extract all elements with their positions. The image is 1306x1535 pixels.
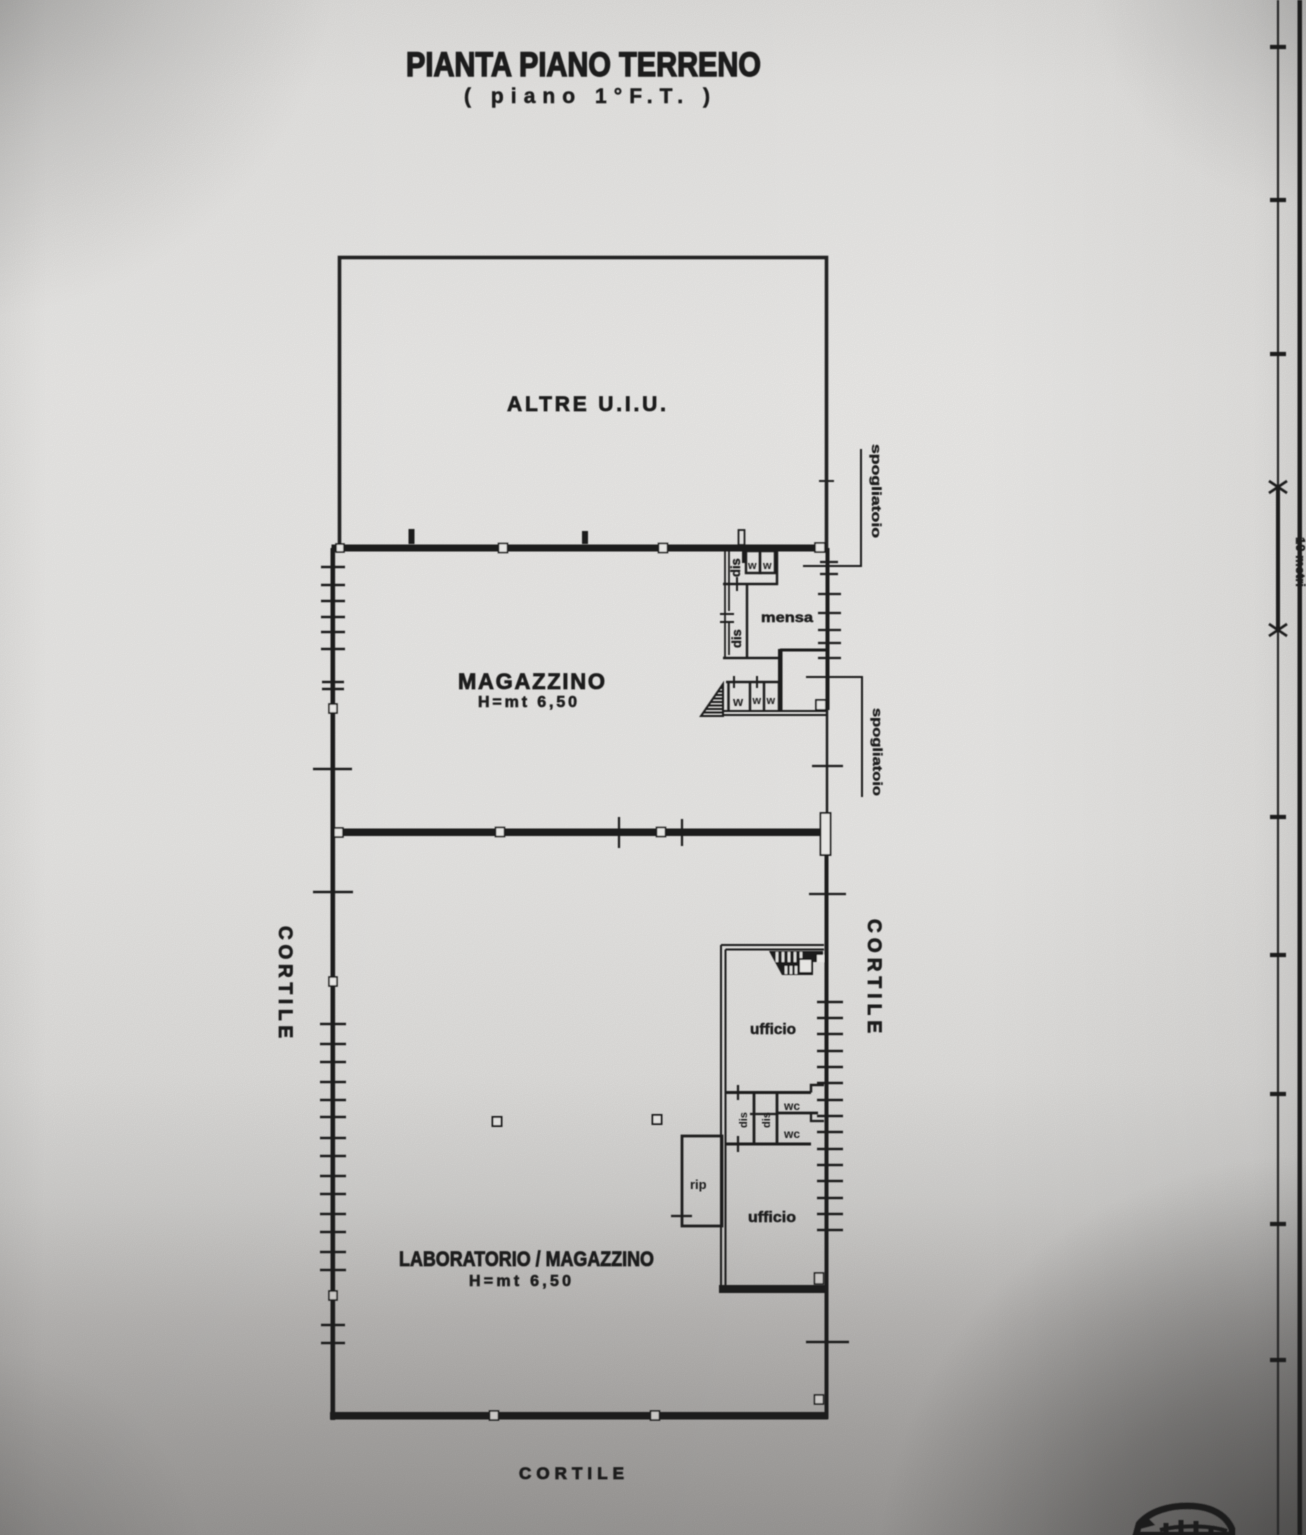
svg-text:spogliatoio: spogliatoio [870,708,885,796]
svg-text:dis: dis [761,1112,773,1128]
svg-text:mensa: mensa [761,609,813,625]
svg-text:w: w [747,560,757,572]
svg-text:ufficio: ufficio [750,1021,796,1038]
svg-text:w: w [732,694,744,709]
svg-text:wc: wc [783,1127,800,1141]
svg-text:w: w [766,695,776,707]
svg-text:wc: wc [783,1099,800,1113]
svg-text:ufficio: ufficio [748,1209,796,1226]
svg-text:rip: rip [690,1177,707,1192]
svg-text:MAGAZZINO: MAGAZZINO [458,669,605,694]
svg-text:PIANTA PIANO TERRENO: PIANTA PIANO TERRENO [406,46,761,84]
svg-text:dis: dis [738,1112,750,1128]
svg-text:LABORATORIO / MAGAZZINO: LABORATORIO / MAGAZZINO [399,1248,654,1271]
svg-text:ALTRE U.I.U.: ALTRE U.I.U. [507,393,666,416]
svg-text:spogliatoio: spogliatoio [869,444,884,538]
svg-text:dis: dis [728,558,743,577]
svg-text:dis: dis [729,629,744,648]
svg-text:w: w [762,560,772,572]
svg-text:w: w [752,695,762,707]
